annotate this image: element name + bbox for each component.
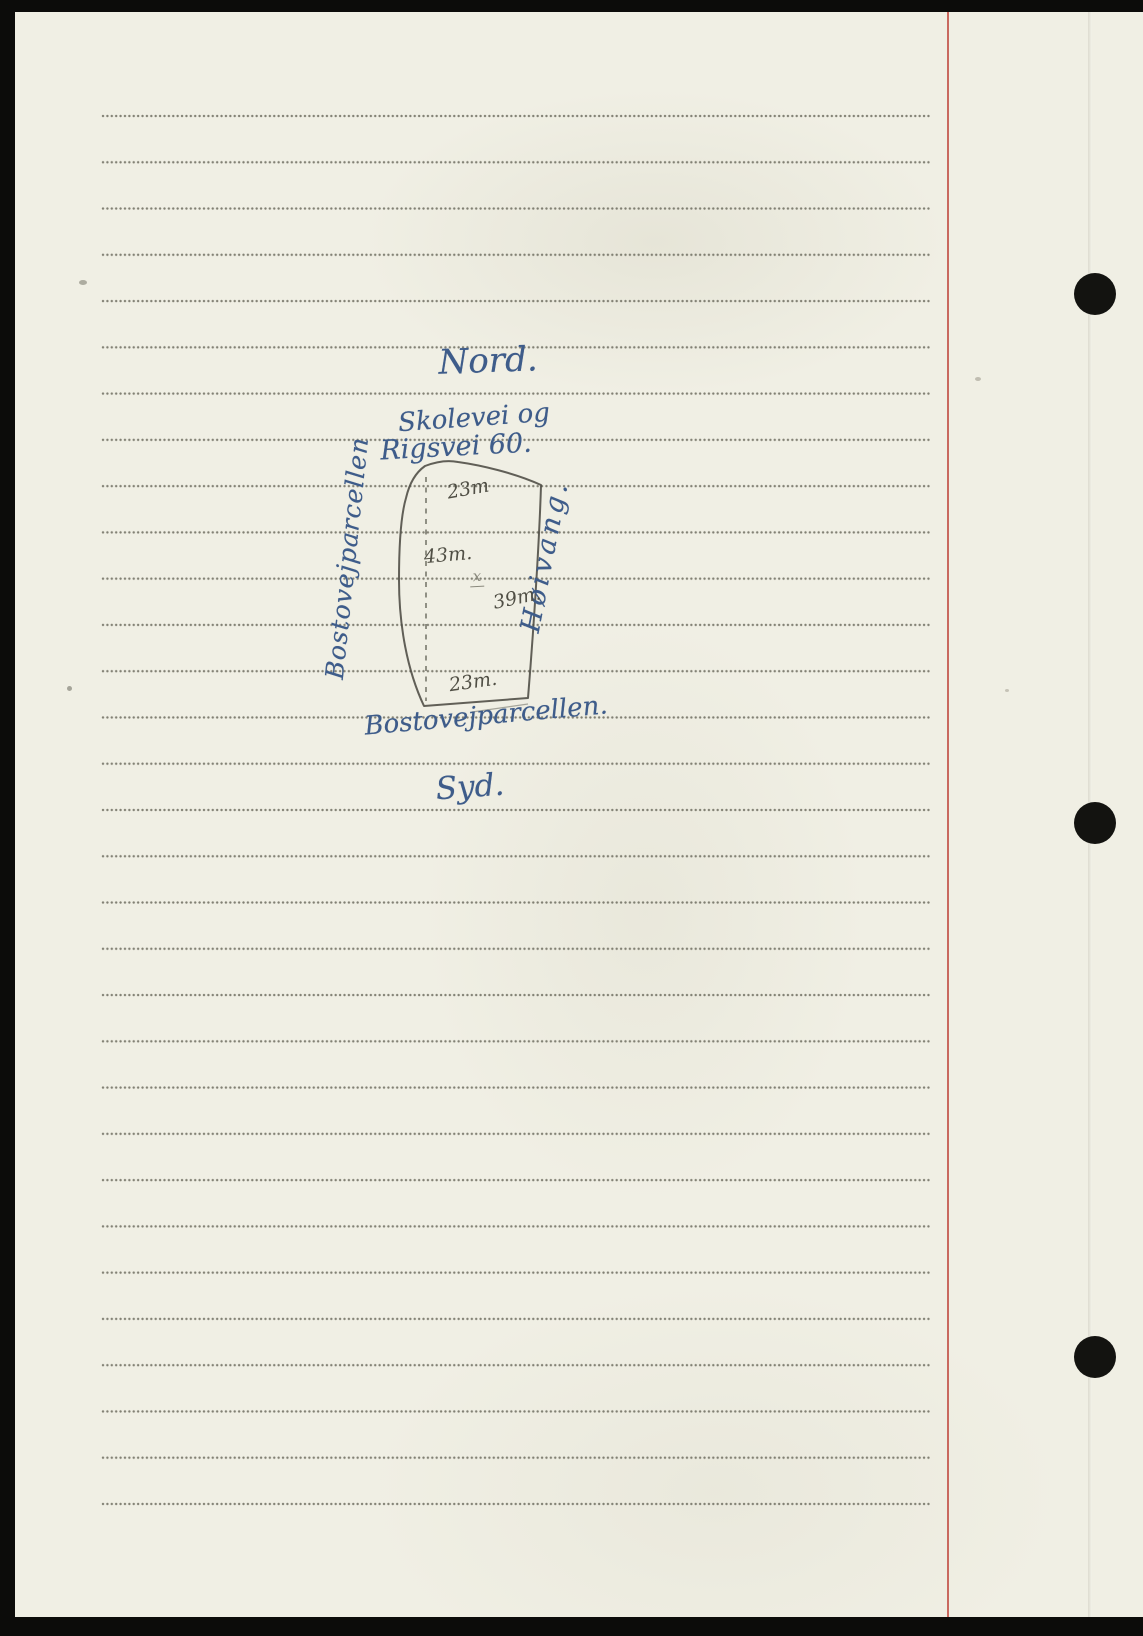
scanned-page: Nord. Skolevei og Rigsvei 60. Bostovejpa… [0,0,1143,1636]
measurement-left-side: 43m. [423,542,473,568]
compass-south-label: Syd. [435,767,506,808]
compass-north-label: Nord. [438,339,538,382]
center-x-mark: x [469,567,484,588]
parcel-sketch-drawing [0,0,1143,1636]
